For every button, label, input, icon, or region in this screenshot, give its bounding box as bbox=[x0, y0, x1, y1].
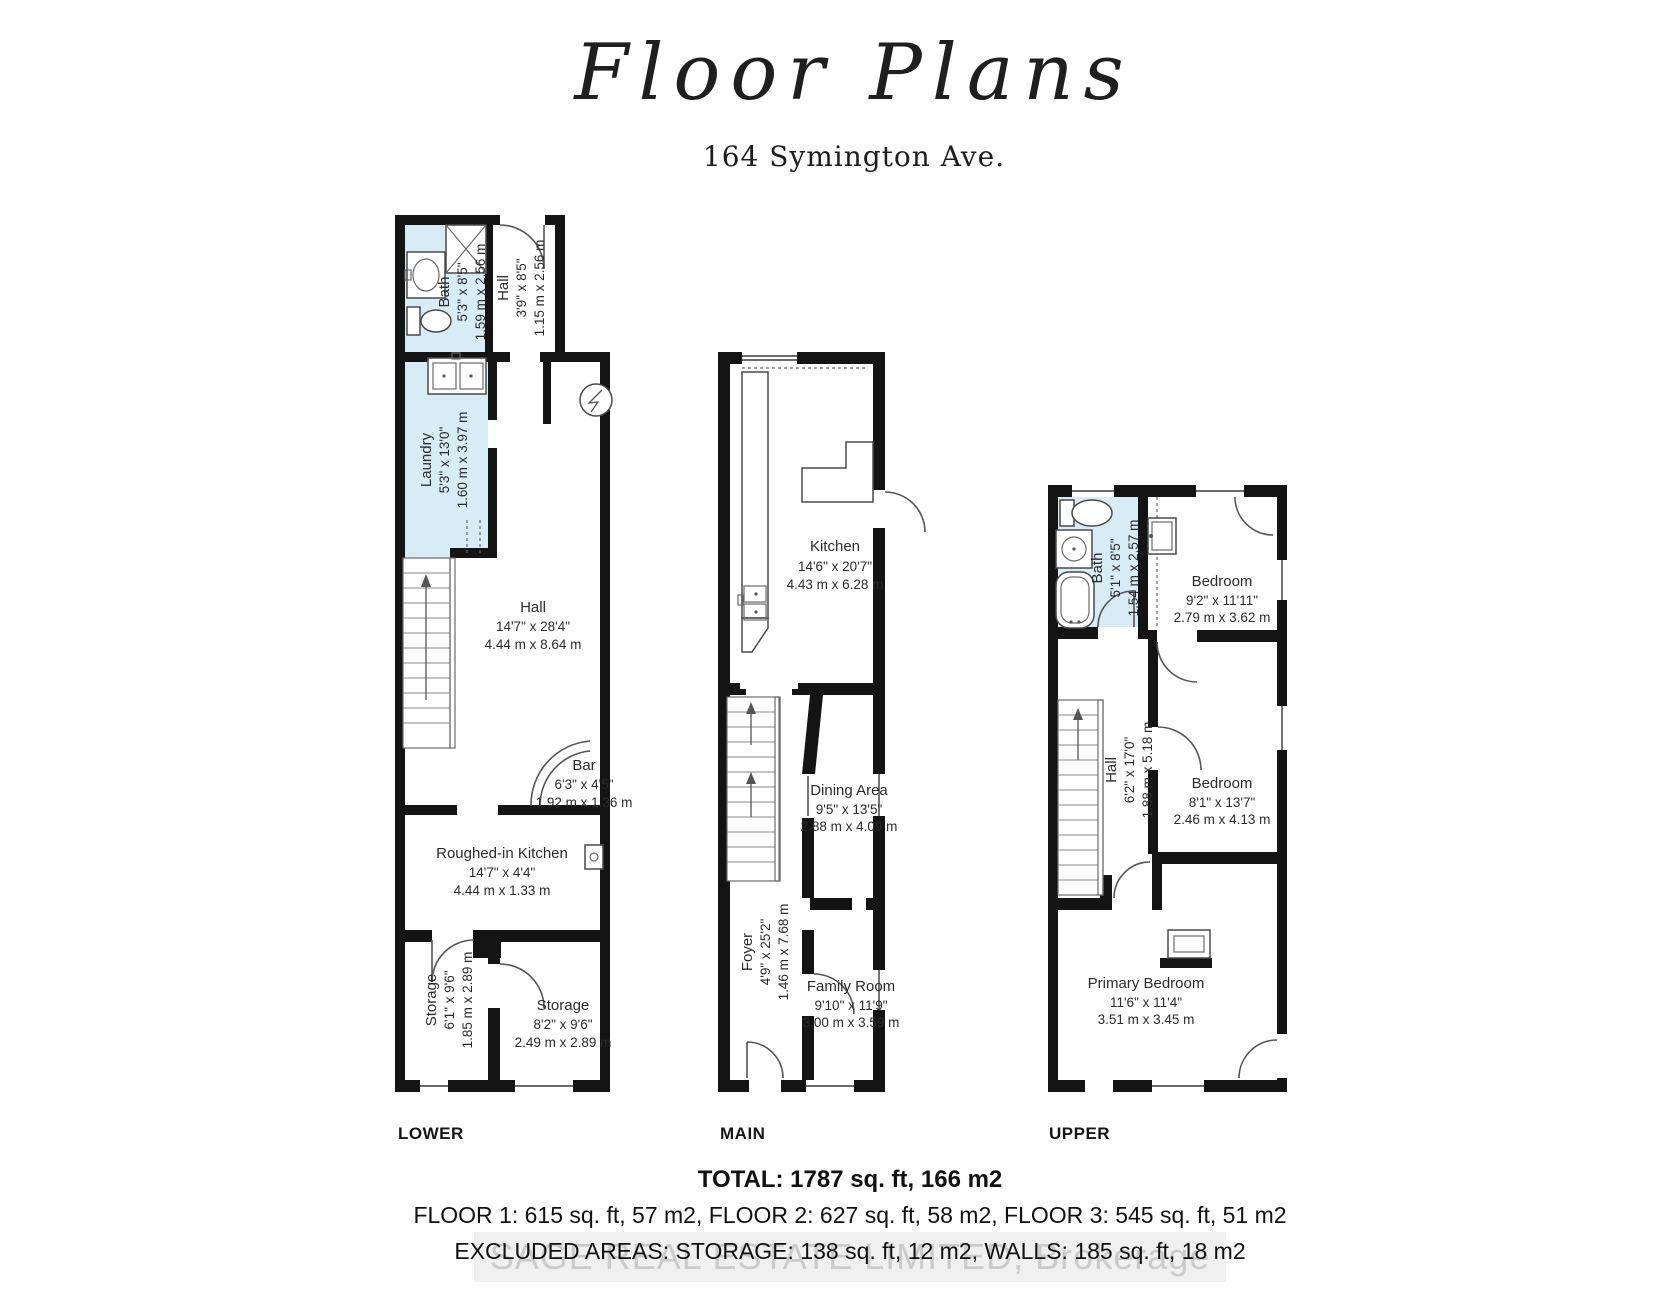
room-dim-storage-right-metric: 2.49 m x 2.89 m bbox=[515, 1035, 612, 1050]
room-label-family: Family Room bbox=[807, 978, 895, 995]
room-label-primary: Primary Bedroom bbox=[1088, 975, 1205, 992]
room-dim-upper-bath-metric: 1.54 m x 2.57 m bbox=[1126, 520, 1141, 617]
laundry-sink-icon bbox=[428, 353, 486, 394]
room-dim-primary-imperial: 11'6" x 11'4" bbox=[1110, 995, 1182, 1010]
sink-icon bbox=[1056, 530, 1092, 568]
main-stairs bbox=[727, 697, 780, 881]
room-dim-roughed-metric: 4.44 m x 1.33 m bbox=[454, 883, 551, 898]
room-label-storage-right: Storage bbox=[537, 997, 590, 1014]
room-label-upper-bath: Bath bbox=[1089, 553, 1106, 584]
total-area-text: TOTAL: 1787 sq. ft, 166 m2 bbox=[10, 1166, 1680, 1194]
page-title: Floor Plans bbox=[14, 28, 1680, 118]
utility-tub-icon bbox=[585, 845, 603, 869]
room-label-foyer: Foyer bbox=[739, 933, 756, 971]
room-label-bar: Bar bbox=[572, 757, 595, 774]
toilet-icon bbox=[407, 307, 451, 335]
room-label-storage-left: Storage bbox=[423, 974, 440, 1027]
room-dim-hall-metric: 4.44 m x 8.64 m bbox=[485, 637, 582, 652]
room-dim-roughed-imperial: 14'7" x 4'4" bbox=[469, 865, 536, 880]
room-label-kitchen: Kitchen bbox=[810, 538, 860, 555]
room-dim-hall-top-imperial: 3'9" x 8'5" bbox=[514, 258, 529, 317]
room-dim-storage-right-imperial: 8'2" x 9'6" bbox=[533, 1017, 592, 1032]
excluded-areas-text: EXCLUDED AREAS: STORAGE: 138 sq. ft, 12 … bbox=[10, 1238, 1680, 1265]
room-dim-family-metric: 3.00 m x 3.59 m bbox=[803, 1015, 900, 1030]
room-dim-upper-bath-imperial: 5'1" x 8'5" bbox=[1108, 538, 1123, 597]
room-dim-foyer-metric: 1.46 m x 7.68 m bbox=[776, 904, 791, 1001]
room-dim-bedroom2-metric: 2.46 m x 4.13 m bbox=[1174, 812, 1271, 827]
lower-stairs bbox=[403, 558, 455, 748]
room-label-bedroom1: Bedroom bbox=[1192, 573, 1253, 590]
lower-floor-plan: Bath 5'3" x 8'5" 1.59 m x 2.56 m Hall 3'… bbox=[370, 195, 620, 1110]
room-dim-primary-metric: 3.51 m x 3.45 m bbox=[1098, 1012, 1195, 1027]
main-floor-plan: Kitchen 14'6" x 20'7" 4.43 m x 6.28 m Di… bbox=[655, 340, 955, 1100]
room-label-bedroom2: Bedroom bbox=[1192, 775, 1253, 792]
room-dim-kitchen-metric: 4.43 m x 6.28 m bbox=[787, 577, 884, 592]
room-dim-dining-metric: 2.88 m x 4.09 m bbox=[801, 819, 898, 834]
floor-label-main: MAIN bbox=[720, 1124, 765, 1144]
room-dim-bath-imperial: 5'3" x 8'5" bbox=[455, 262, 470, 321]
room-dim-dining-imperial: 9'5" x 13'5" bbox=[816, 802, 883, 817]
room-label-hall-top: Hall bbox=[495, 275, 512, 301]
cabinet-icon bbox=[1148, 518, 1176, 554]
room-dim-bedroom1-imperial: 9'2" x 11'11" bbox=[1186, 593, 1258, 608]
electrical-panel-icon bbox=[580, 384, 612, 416]
room-label-dining: Dining Area bbox=[810, 782, 888, 799]
room-dim-upper-hall-metric: 1.88 m x 5.18 m bbox=[1140, 722, 1155, 819]
main-kitchen-counters bbox=[738, 368, 873, 652]
room-label-bath: Bath bbox=[436, 277, 453, 308]
room-label-roughed-kitchen: Roughed-in Kitchen bbox=[436, 845, 568, 862]
room-dim-bar-metric: 1.92 m x 1.36 m bbox=[536, 795, 633, 810]
room-dim-bedroom2-imperial: 8'1" x 13'7" bbox=[1189, 795, 1256, 810]
room-dim-laundry-metric: 1.60 m x 3.97 m bbox=[455, 412, 470, 509]
room-dim-hall-imperial: 14'7" x 28'4" bbox=[496, 619, 570, 634]
floor-areas-text: FLOOR 1: 615 sq. ft, 57 m2, FLOOR 2: 627… bbox=[10, 1202, 1680, 1229]
room-label-upper-hall: Hall bbox=[1103, 757, 1120, 783]
room-dim-kitchen-imperial: 14'6" x 20'7" bbox=[798, 559, 872, 574]
floor-label-upper: UPPER bbox=[1049, 1124, 1110, 1144]
room-dim-storage-left-imperial: 6'1" x 9'6" bbox=[442, 970, 457, 1029]
room-dim-family-imperial: 9'10" x 11'9" bbox=[814, 998, 887, 1013]
upper-floor-plan: Bath 5'1" x 8'5" 1.54 m x 2.57 m Bedroom… bbox=[1040, 455, 1300, 1115]
property-address: 164 Symington Ave. bbox=[14, 140, 1680, 173]
room-dim-hall-top-metric: 1.15 m x 2.56 m bbox=[532, 240, 547, 337]
room-label-hall: Hall bbox=[520, 599, 546, 616]
upper-stairs bbox=[1058, 700, 1103, 895]
window-box-icon bbox=[1168, 930, 1210, 958]
room-dim-storage-left-metric: 1.85 m x 2.89 m bbox=[460, 952, 475, 1049]
room-dim-bar-imperial: 6'3" x 4'5" bbox=[554, 777, 613, 792]
room-dim-bedroom1-metric: 2.79 m x 3.62 m bbox=[1174, 610, 1271, 625]
room-dim-bath-metric: 1.59 m x 2.56 m bbox=[473, 244, 488, 341]
room-label-laundry: Laundry bbox=[418, 432, 435, 487]
room-dim-upper-hall-imperial: 6'2" x 17'0" bbox=[1122, 737, 1137, 804]
toilet-icon bbox=[1060, 500, 1112, 526]
floor-label-lower: LOWER bbox=[398, 1124, 464, 1144]
room-dim-laundry-imperial: 5'3" x 13'0" bbox=[437, 427, 452, 494]
room-dim-foyer-imperial: 4'9" x 25'2" bbox=[758, 919, 773, 986]
